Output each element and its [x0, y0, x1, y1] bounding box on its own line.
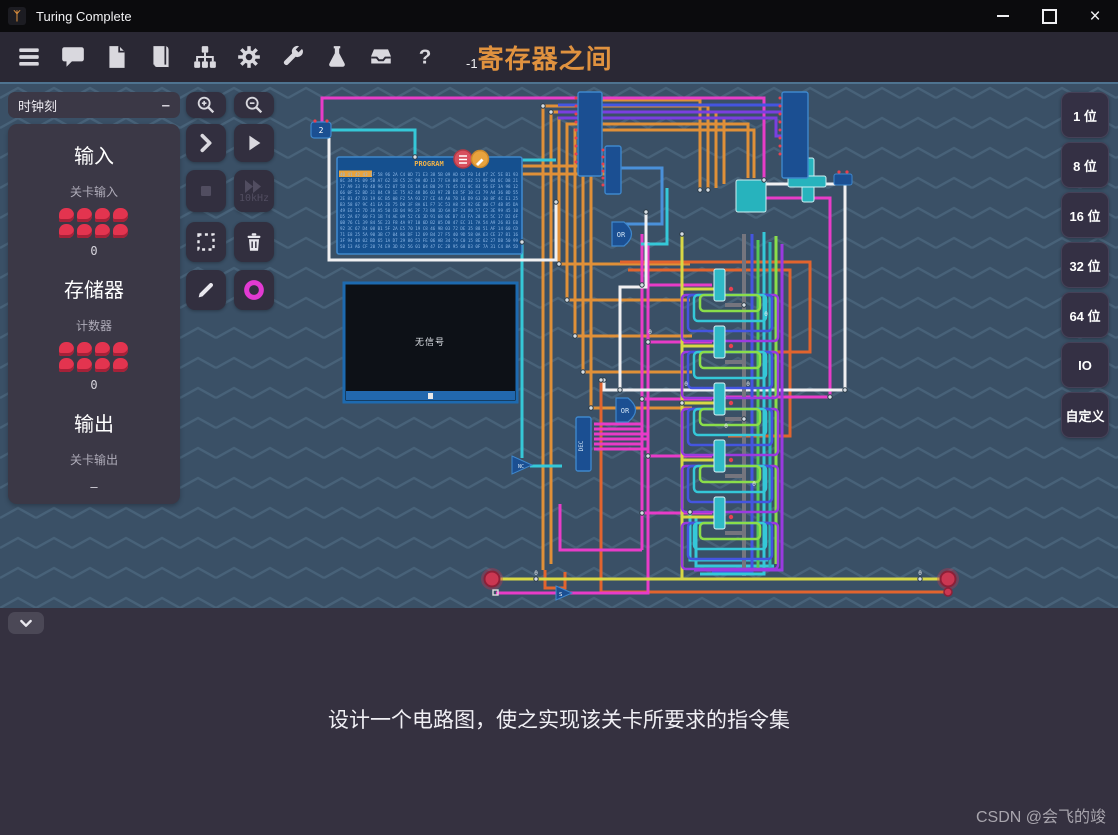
input-value: 0: [90, 244, 97, 258]
memory-heading: 存储器: [64, 274, 124, 303]
question-icon: ?: [412, 44, 438, 70]
manual-button[interactable]: [146, 42, 176, 72]
svg-text:0: 0: [724, 423, 728, 430]
select-icon: [194, 230, 218, 254]
title-bar: ᛉ Turing Complete ×: [0, 0, 1118, 32]
counter-bit: [113, 358, 128, 372]
wrench-icon: [280, 44, 306, 70]
input-bit[interactable]: [95, 208, 110, 222]
category-64bit[interactable]: 64 位: [1061, 292, 1109, 338]
counter-label: 计数器: [76, 317, 112, 334]
close-icon: ×: [1089, 7, 1100, 26]
input-heading: 输入: [74, 140, 114, 169]
svg-text:0: 0: [648, 329, 652, 336]
menu-button[interactable]: [14, 42, 44, 72]
counter-bit: [95, 358, 110, 372]
minimize-icon: [997, 15, 1009, 17]
svg-text:OR: OR: [621, 407, 630, 415]
counter-bits: [59, 342, 130, 373]
program-edit-button[interactable]: [472, 151, 489, 168]
svg-text:OR: OR: [617, 231, 626, 239]
collapse-panel-button[interactable]: [8, 612, 44, 634]
stop-icon: [195, 180, 217, 202]
clock-collapse-button[interactable]: –: [162, 97, 170, 114]
output-node[interactable]: [941, 572, 956, 587]
counter-bit: [59, 342, 74, 356]
maximize-icon: [1042, 9, 1057, 24]
delete-button[interactable]: [234, 222, 274, 262]
hierarchy-button[interactable]: [190, 42, 220, 72]
input-bit[interactable]: [77, 224, 92, 238]
zoom-out-icon: [243, 94, 265, 116]
svg-text:17 A9 33 F0 4B 96 E2 07 5D C8: 17 A9 33 F0 4B 96 E2 07 5D C8 1A 64 B0 2…: [340, 184, 518, 190]
output-label: 关卡输出: [70, 451, 118, 468]
book-icon: [148, 44, 174, 70]
clock-label: 时钟刻: [18, 96, 57, 115]
level-title: 寄存器之间: [478, 39, 613, 76]
counter-bit: [77, 342, 92, 356]
svg-text:NC: NC: [518, 464, 524, 470]
tray-icon: [367, 44, 395, 70]
svg-text:49 E6 12 7D 38 A5 50 CB 04 96: 49 E6 12 7D 38 A5 50 CB 04 96 2F 73 B8 1…: [340, 208, 518, 214]
io-panel: 输入 关卡输入 0 存储器 计数器 0 输出 关卡输出 –: [8, 124, 180, 504]
screen-component[interactable]: 无信号: [344, 283, 517, 402]
output-value: –: [90, 480, 97, 494]
category-custom[interactable]: 自定义: [1061, 392, 1109, 438]
svg-text:B3 58 07 9C 41 EA 26 75 D0 3F: B3 58 07 9C 41 EA 26 75 D0 3F 8A 61 F7 1…: [340, 202, 518, 208]
counter-bit: [95, 342, 110, 356]
svg-text:S: S: [559, 592, 562, 598]
flask-icon: [324, 44, 350, 70]
program-rom[interactable]: PROGRAM 40 41 42 43 1F 58 96 2A C4 0D 71…: [337, 150, 522, 254]
program-delete-button[interactable]: [454, 150, 472, 168]
trash-icon: [243, 231, 265, 253]
counter-bit: [59, 358, 74, 372]
no-signal-text: 无信号: [415, 336, 445, 348]
objective-panel: 设计一个电路图，使之实现该关卡所要求的指令集 CSDN @会飞的竣: [0, 608, 1118, 835]
program-title: PROGRAM: [414, 160, 444, 168]
svg-text:2: 2: [319, 126, 324, 135]
chat-button[interactable]: [58, 42, 88, 72]
category-8bit[interactable]: 8 位: [1061, 142, 1109, 188]
input-label: 关卡输入: [70, 183, 118, 200]
category-16bit[interactable]: 16 位: [1061, 192, 1109, 238]
step-button[interactable]: [186, 124, 226, 162]
counter-bit: [77, 358, 92, 372]
input-bit[interactable]: [77, 208, 92, 222]
window-title: Turing Complete: [36, 9, 132, 24]
play-icon: [243, 132, 265, 154]
select-button[interactable]: [186, 222, 226, 262]
minimize-button[interactable]: [980, 0, 1026, 32]
help-button[interactable]: ?: [410, 42, 440, 72]
input-bit[interactable]: [113, 208, 128, 222]
ring-icon: [241, 277, 267, 303]
chevron-down-icon: [18, 615, 34, 631]
dec-label: DEC: [578, 440, 585, 451]
turing-complete-window: ᛉ Turing Complete ×: [0, 0, 1118, 835]
level-heading: -1 寄存器之间: [466, 39, 613, 76]
tick-button[interactable]: [234, 270, 274, 310]
counter-bit: [113, 342, 128, 356]
svg-text:0: 0: [752, 481, 756, 488]
input-bits: [59, 208, 130, 239]
zoom-in-button[interactable]: [186, 92, 226, 118]
selector-chip: [782, 92, 808, 178]
fast-forward-button[interactable]: 10kHz: [234, 170, 274, 212]
settings-button[interactable]: [234, 42, 264, 72]
input-bit[interactable]: [59, 224, 74, 238]
hamburger-icon: [16, 44, 42, 70]
screen-pip: [428, 393, 433, 399]
svg-text:3F 94 48 02 BD 65 1A D7 29 80: 3F 94 48 02 BD 65 1A D7 29 80 53 FE 06 A…: [340, 238, 518, 244]
svg-text:2E 81 47 D3 19 6C B5 08 F2 5A: 2E 81 47 D3 19 6C B5 08 F2 5A 93 27 CE 4…: [340, 196, 518, 202]
svg-text:?: ?: [419, 46, 432, 69]
svg-text:92 3C 67 D4 08 B1 5F 2A E5 70: 92 3C 67 D4 08 B1 5F 2A E5 70 19 C8 46 9…: [340, 226, 518, 232]
stop-button[interactable]: [186, 170, 226, 212]
app-logo-icon: ᛉ: [8, 7, 26, 25]
input-bit[interactable]: [59, 208, 74, 222]
tools-button[interactable]: [278, 42, 308, 72]
decoder-chip: [578, 92, 602, 176]
output-heading: 输出: [74, 408, 114, 437]
counter-value: 0: [90, 378, 97, 392]
smc-component: [834, 174, 852, 185]
play-button[interactable]: [234, 124, 274, 162]
fast-forward-label: 10kHz: [239, 193, 269, 204]
svg-text:D5 2A 87 60 F3 1B 74 AE 09 52: D5 2A 87 60 F3 1B 74 AE 09 52 C6 3D 91 6…: [340, 214, 518, 220]
svg-text:0: 0: [764, 311, 768, 318]
svg-text:66 0F 52 BD 31 84 C9 1E 75 A2: 66 0F 52 BD 31 84 C9 1E 75 A2 48 D6 03 9…: [340, 190, 518, 196]
file-icon: [104, 44, 130, 70]
category-io[interactable]: IO: [1061, 342, 1109, 388]
svg-text:58 13 A6 CF 20 74 E9 3D 82 56: 58 13 A6 CF 20 74 E9 3D 82 56 01 B9 47 E…: [340, 244, 518, 250]
objective-text: 设计一个电路图，使之实现该关卡所要求的指令集: [0, 704, 1118, 734]
category-32bit[interactable]: 32 位: [1061, 242, 1109, 288]
svg-text:0: 0: [684, 381, 688, 388]
pencil-icon: [195, 279, 217, 301]
input-node[interactable]: [485, 572, 500, 587]
watermark: CSDN @会飞的竣: [976, 803, 1106, 827]
circuit-workspace: DEC OR OR 2 NC S PROGRAM: [0, 82, 1118, 608]
maximize-button[interactable]: [1026, 0, 1072, 32]
mux-chip: [605, 146, 621, 194]
new-file-button[interactable]: [102, 42, 132, 72]
gear-icon: [236, 44, 262, 70]
svg-text:71 E8 25 5A 90 3B C7 04 86 DF: 71 E8 25 5A 90 3B C7 04 86 DF 12 69 B4 2…: [340, 232, 518, 238]
svg-text:8C 34 F1 09 5B A7 62 18 C5 2E: 8C 34 F1 09 5B A7 62 18 C5 2E 90 4D 13 7…: [340, 178, 518, 184]
window-controls: ×: [980, 0, 1118, 32]
svg-text:0B 76 C1 39 84 5E 23 F8 4A 97: 0B 76 C1 39 84 5E 23 F8 4A 97 10 6D B2 0…: [340, 220, 518, 226]
edit-button[interactable]: [186, 270, 226, 310]
input-bit[interactable]: [113, 224, 128, 238]
step-icon: [195, 132, 217, 154]
zoom-in-icon: [195, 94, 217, 116]
clock-tick-bar: 时钟刻 –: [8, 92, 180, 118]
svg-text:40 41 42 43 1F 58 96 2A C4 0D: 40 41 42 43 1F 58 96 2A C4 0D 71 E3 38 5…: [340, 172, 518, 178]
zoom-out-button[interactable]: [234, 92, 274, 118]
main-toolbar: ? -1 寄存器之间: [0, 32, 1118, 82]
level-id: -1: [466, 56, 478, 71]
inbox-button[interactable]: [366, 42, 396, 72]
svg-text:0: 0: [534, 570, 538, 577]
input-bit[interactable]: [95, 224, 110, 238]
svg-text:0: 0: [918, 570, 922, 577]
svg-text:0: 0: [746, 381, 750, 388]
lab-button[interactable]: [322, 42, 352, 72]
tree-icon: [192, 44, 218, 70]
close-button[interactable]: ×: [1072, 0, 1118, 32]
chat-icon: [60, 44, 86, 70]
program-rows: 40 41 42 43 1F 58 96 2A C4 0D 71 E3 38 5…: [340, 172, 518, 250]
category-1bit[interactable]: 1 位: [1061, 92, 1109, 138]
